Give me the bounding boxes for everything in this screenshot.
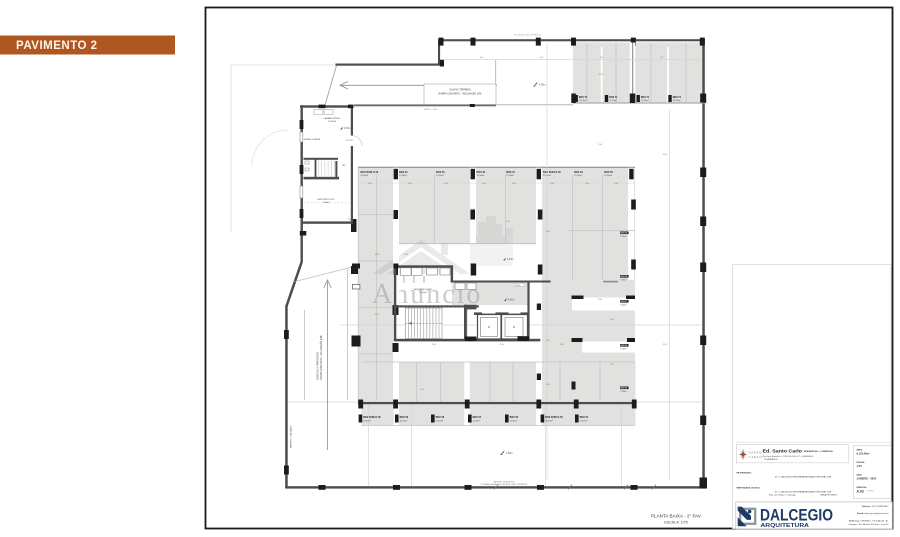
svg-text:12,50m²: 12,50m² <box>574 174 582 177</box>
svg-text:CARLO: CARLO <box>749 455 763 459</box>
svg-text:12,50m²: 12,50m² <box>641 99 649 102</box>
svg-text:RESPONSÁVEL TÉCNICO:: RESPONSÁVEL TÉCNICO: <box>737 487 761 490</box>
svg-text:23,45m²: 23,45m² <box>363 419 371 422</box>
svg-text:BOX 39: BOX 39 <box>621 233 628 235</box>
svg-text:4,50m: 4,50m <box>508 300 514 302</box>
svg-text:A.03: A.03 <box>857 490 864 494</box>
svg-text:ESCALA: 1/75: ESCALA: 1/75 <box>664 521 687 525</box>
svg-text:4,50m: 4,50m <box>506 452 513 455</box>
svg-text:ÁREA:: ÁREA: <box>857 449 863 452</box>
svg-text:BOX 58: BOX 58 <box>436 416 445 419</box>
svg-text:NÍVEL + 4,50: NÍVEL + 4,50 <box>424 108 438 111</box>
svg-text:NÍVEL: NÍVEL <box>515 284 520 287</box>
svg-text:BOX 50: BOX 50 <box>604 171 613 174</box>
svg-text:BOX 36: BOX 36 <box>621 345 628 347</box>
svg-text:PIÇARRAS/SC: PIÇARRAS/SC <box>764 458 779 461</box>
svg-text:Joaquim - Ed. Michele N. Pietr: Joaquim - Ed. Michele N. Pietra - Loja 0… <box>849 523 890 526</box>
svg-text:BOX 46: BOX 46 <box>477 171 486 174</box>
svg-text:BOX DUPLO 60: BOX DUPLO 60 <box>363 416 381 419</box>
svg-text:BOX 44: BOX 44 <box>399 171 408 174</box>
svg-text:12,50m²: 12,50m² <box>604 174 612 177</box>
svg-text:12,50m²: 12,50m² <box>506 174 514 177</box>
svg-text:12,50m²: 12,50m² <box>436 174 444 177</box>
svg-text:Endereço: TURISMO - Praia ALGA: Endereço: TURISMO - Praia ALGA - Av. <box>849 520 889 523</box>
svg-text:7,25m²: 7,25m² <box>620 279 627 282</box>
svg-text:12,50m²: 12,50m² <box>473 419 481 422</box>
svg-text:Email: dalcegio.arq@gmail.com: Email: dalcegio.arq@gmail.com <box>857 512 888 515</box>
svg-text:BOX DUPLO 55: BOX DUPLO 55 <box>545 416 563 419</box>
svg-text:M. C. DALCEGIO ENGENHARIA E AR: M. C. DALCEGIO ENGENHARIA E ARQUITETURA … <box>775 491 832 494</box>
svg-text:BOX 45: BOX 45 <box>436 171 445 174</box>
svg-text:7,25m²: 7,25m² <box>620 348 627 351</box>
svg-text:PLANTA BAIXA - 2° PAV: PLANTA BAIXA - 2° PAV <box>651 514 702 519</box>
svg-text:BOX DUPLO 48: BOX DUPLO 48 <box>543 171 561 174</box>
svg-text:23,45m²: 23,45m² <box>545 419 553 422</box>
svg-text:4,50m: 4,50m <box>539 83 546 86</box>
svg-text:BOX 73: BOX 73 <box>673 97 682 99</box>
svg-text:BOX 54: BOX 54 <box>580 416 589 419</box>
svg-text:RAMPA CONCRETO - INCLINAÇÃO 20: RAMPA CONCRETO - INCLINAÇÃO 20% <box>320 334 323 380</box>
svg-text:M. C. DALCEGIO ENGENHARIA E AR: M. C. DALCEGIO ENGENHARIA E ARQUITETURA … <box>775 475 832 478</box>
svg-text:12,50m²: 12,50m² <box>579 99 587 102</box>
svg-text:12,50m²: 12,50m² <box>510 419 518 422</box>
svg-text:BOX 37: BOX 37 <box>621 301 628 303</box>
svg-text:BOX 72: BOX 72 <box>641 97 650 99</box>
svg-text:LAVABO MÓVEL: LAVABO MÓVEL <box>324 117 341 120</box>
svg-text:VESTIÁRIO FUNC.: VESTIÁRIO FUNC. <box>414 288 433 291</box>
svg-text:12,70m²: 12,70m² <box>400 419 408 422</box>
svg-text:DATA:: DATA: <box>857 474 863 477</box>
svg-text:12,50m²: 12,50m² <box>580 419 588 422</box>
svg-text:PASSEIO DE ACESSO: PASSEIO DE ACESSO <box>494 480 515 483</box>
svg-text:7,25m²: 7,25m² <box>620 390 627 393</box>
svg-text:DEPÓSITO LIXO: DEPÓSITO LIXO <box>318 198 335 201</box>
svg-text:JANEIRO - 2024: JANEIRO - 2024 <box>857 477 877 481</box>
svg-text:7,25m²: 7,25m² <box>620 304 627 307</box>
svg-text:PAVIMENTO 2: PAVIMENTO 2 <box>16 40 98 52</box>
svg-text:12,00m²: 12,00m² <box>328 120 336 123</box>
svg-text:12,50m²: 12,50m² <box>436 419 444 422</box>
svg-text:BOX 70: BOX 70 <box>579 97 588 99</box>
svg-text:Ed. Santo Carlo: Ed. Santo Carlo <box>763 449 803 454</box>
svg-text:PASSEIO - CALÇADA: PASSEIO - CALÇADA <box>290 426 293 448</box>
svg-text:4,50m: 4,50m <box>344 128 350 130</box>
svg-text:BOX 38: BOX 38 <box>621 276 628 278</box>
svg-text:SANTO: SANTO <box>749 450 763 454</box>
svg-text:9.123,49m²: 9.123,49m² <box>857 452 870 456</box>
svg-text:Rua José Bonifácio, LOTES 05,: Rua José Bonifácio, LOTES 05, 06 E 07 - … <box>763 455 815 458</box>
svg-text:PROJEÇÃO PAV. SUPERIOR: PROJEÇÃO PAV. SUPERIOR <box>514 34 541 37</box>
svg-text:12,50m²: 12,50m² <box>609 99 617 102</box>
svg-text:12,00m²: 12,00m² <box>419 291 427 294</box>
svg-text:1:75: 1:75 <box>857 464 863 468</box>
svg-text:12,50m²: 12,50m² <box>477 174 485 177</box>
svg-text:ESCALA:: ESCALA: <box>857 461 866 464</box>
svg-text:DALCEGIO: DALCEGIO <box>760 506 833 524</box>
svg-text:BOX 49: BOX 49 <box>574 171 583 174</box>
svg-text:BOX 71: BOX 71 <box>609 97 618 99</box>
svg-text:12,50m²: 12,50m² <box>399 174 407 177</box>
svg-text:GUIA NO TERRENO: GUIA NO TERRENO <box>449 89 471 92</box>
svg-text:ACESSO: ACESSO <box>346 139 354 142</box>
svg-text:23,45m²: 23,45m² <box>361 174 369 177</box>
svg-text:7,00m²: 7,00m² <box>323 201 330 204</box>
svg-text:4,50m: 4,50m <box>507 259 513 261</box>
svg-text:RAMPA CONCRETO - INCLINAÇÃO 10: RAMPA CONCRETO - INCLINAÇÃO 10% <box>439 93 482 96</box>
svg-text:RESIDENCIAL + COMERCIAL: RESIDENCIAL + COMERCIAL <box>804 450 834 453</box>
svg-text:/ 07 FLS: / 07 FLS <box>867 491 875 493</box>
svg-text:PROPRIETÁRIO:: PROPRIETÁRIO: <box>737 472 752 475</box>
svg-text:P/ VAGAS GARAGEM E ACESSO PAV.: P/ VAGAS GARAGEM E ACESSO PAV. SUPERIOR <box>481 483 528 486</box>
svg-text:Telefone: (47) 9 9999-9912: Telefone: (47) 9 9999-9912 <box>862 506 890 508</box>
svg-text:BOX 59: BOX 59 <box>400 416 409 419</box>
svg-text:BOX 57: BOX 57 <box>473 416 482 419</box>
svg-text:WC: WC <box>342 165 346 167</box>
svg-text:ARQUITETURA: ARQUITETURA <box>761 523 810 529</box>
svg-text:BOX 47: BOX 47 <box>506 171 515 174</box>
svg-text:BOX 35: BOX 35 <box>621 388 628 390</box>
svg-text:BOX DUPLO 43: BOX DUPLO 43 <box>361 171 379 174</box>
svg-text:12,50m²: 12,50m² <box>673 99 681 102</box>
svg-text:HOME LOUNGE: HOME LOUNGE <box>304 139 321 141</box>
svg-text:CREA-PR 94918: CREA-PR 94918 <box>820 494 837 497</box>
svg-text:Eng. Civil Kátia C. Dalcegio: Eng. Civil Kátia C. Dalcegio <box>769 494 797 497</box>
svg-text:BOX 56: BOX 56 <box>510 416 519 419</box>
svg-text:7,25m²: 7,25m² <box>620 235 627 238</box>
